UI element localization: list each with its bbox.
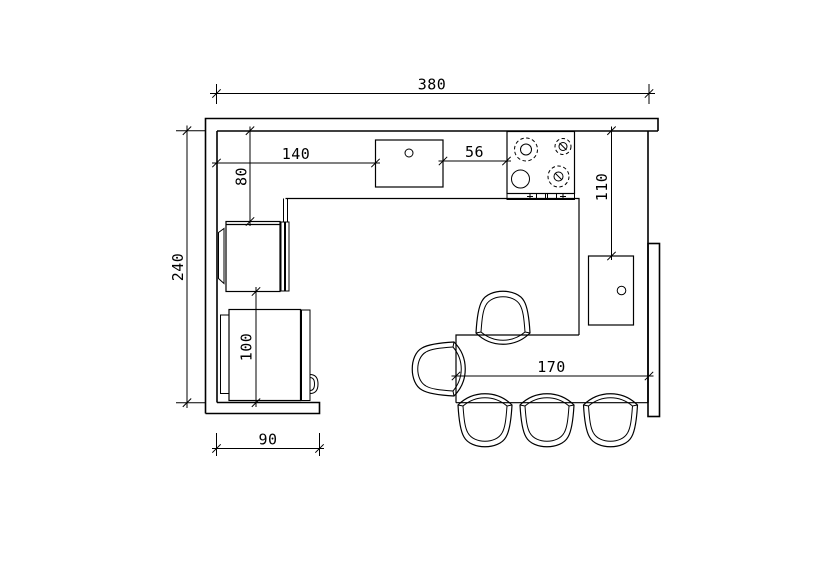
kitchen-counter-outline: [284, 199, 580, 336]
chairs: [412, 291, 637, 447]
tall-cabinet-door-panel: [219, 229, 225, 284]
dim-label-170: 170: [537, 358, 566, 376]
dimension-wall-to-tall-unit: 80: [233, 127, 255, 227]
dim-label-240: 240: [169, 253, 187, 282]
dim-label-100: 100: [238, 333, 256, 362]
chair-top: [476, 291, 530, 344]
counter-left-return: [284, 199, 288, 223]
chair-bottom-1: [458, 394, 512, 447]
refrigerator: [221, 310, 319, 401]
dim-label-110: 110: [593, 173, 611, 202]
dimension-sink-to-stove: 56: [439, 143, 512, 165]
dim-label-380: 380: [418, 76, 447, 94]
fridge-handle-inner: [310, 378, 315, 391]
chair-bottom-3: [584, 394, 638, 447]
dim-label-140: 140: [282, 145, 311, 163]
tall-cabinet-side-strip: [281, 222, 285, 291]
dim-label-80: 80: [233, 167, 251, 186]
dimension-bottom-wall-stub: 90: [212, 431, 324, 457]
burner-medium-right-slash: [555, 173, 562, 180]
tall-cabinet-side-strip: [286, 222, 290, 291]
dimension-wall-to-sink: 140: [212, 145, 380, 167]
stove-body: [507, 132, 575, 194]
chair-left: [412, 342, 465, 396]
stove: [507, 132, 575, 200]
fridge-right-panel: [302, 310, 311, 401]
burner-small-right-slash: [560, 143, 567, 150]
side-cabinet: [589, 256, 634, 325]
dimension-overall-height: 240: [169, 126, 205, 409]
burner-large-left-center: [521, 144, 532, 155]
bottom-wall-stub: [206, 403, 320, 414]
sink: [376, 140, 444, 187]
fridge-left-panel: [221, 315, 230, 394]
side-cabinet-body: [589, 256, 634, 325]
sink-basin: [376, 140, 444, 187]
dimension-overall-width: 380: [210, 76, 655, 105]
tall-cabinet: [219, 222, 290, 292]
burner-plain-left-icon: [512, 170, 530, 188]
chair-bottom-2: [520, 394, 574, 447]
dim-label-56: 56: [465, 143, 484, 161]
right-wall-pier: [648, 244, 660, 417]
dimension-wall-to-side-cabinet: 110: [593, 127, 616, 261]
counter-front-edge: [286, 199, 580, 336]
kitchen-floor-plan: 380 240 140 56 80 110 100 170 90: [0, 0, 817, 580]
tall-cabinet-body: [226, 222, 280, 292]
dim-label-90: 90: [258, 431, 277, 449]
sink-drain: [405, 149, 413, 157]
dimension-fridge-zone: 100: [238, 287, 261, 407]
burner-large-left-icon: [515, 138, 538, 161]
dimension-table-length: 170: [452, 358, 654, 380]
side-cabinet-knob: [617, 286, 626, 295]
